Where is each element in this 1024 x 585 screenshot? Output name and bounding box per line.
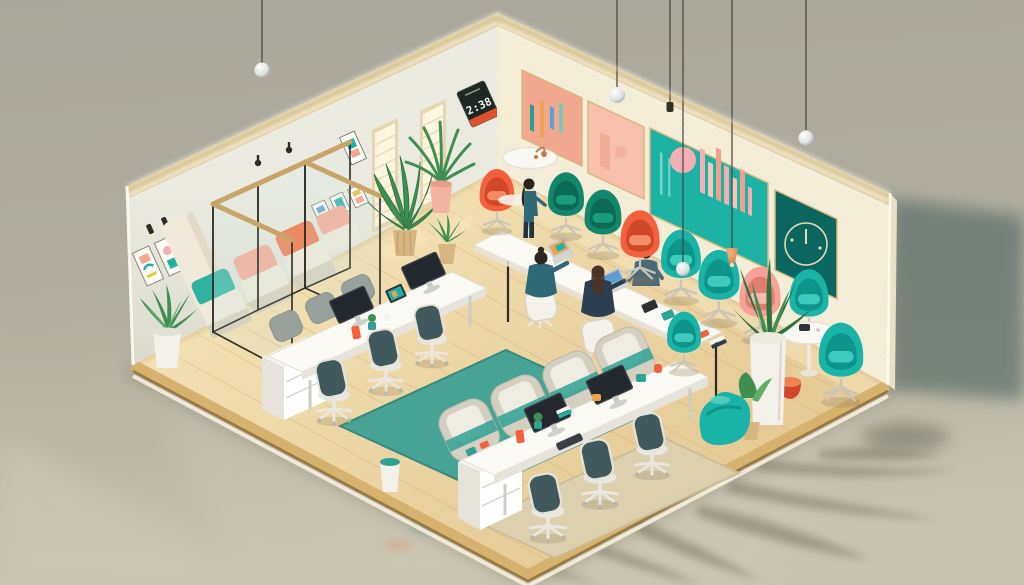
pendant-sphere-3 [676, 262, 690, 276]
trash-bin [380, 458, 400, 492]
pendant-sphere-4 [799, 131, 814, 146]
pendant-sphere-2 [609, 87, 625, 103]
speaker [799, 324, 810, 331]
pendant-sphere-1 [255, 63, 270, 78]
corner-shadow [861, 424, 949, 450]
scene-canvas: 2:38 [0, 0, 1024, 585]
orange-reflection-smudge [384, 540, 412, 550]
pendant-fixture-small [667, 102, 674, 112]
isometric-office-illustration: 2:38 [0, 0, 1024, 585]
cast-shadow-wedge [886, 198, 1024, 400]
